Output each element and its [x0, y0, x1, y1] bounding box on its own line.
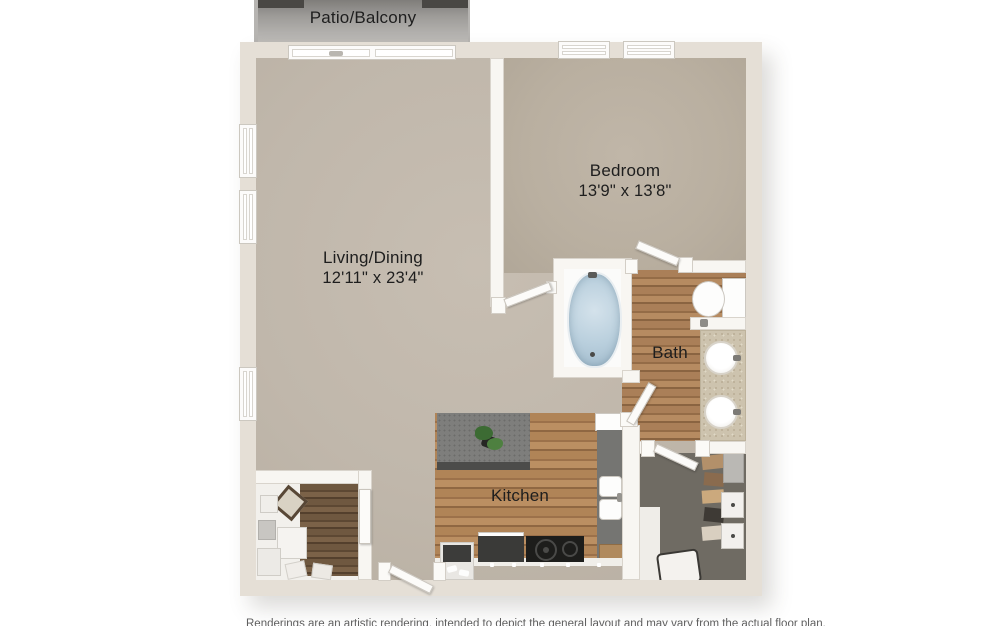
- walkin-bag: [723, 452, 744, 483]
- walkin-box-dot-2: [731, 534, 735, 538]
- closet-box-1: [260, 495, 278, 513]
- shower-head-icon: [588, 272, 597, 278]
- tub-drain-icon: [590, 352, 595, 357]
- toilet-half-wall: [690, 317, 746, 330]
- cabinet-handle-4: [566, 563, 570, 567]
- exterior-wall-bottom: [240, 580, 762, 596]
- cabinet-handle-3: [540, 563, 544, 567]
- wall-kitchen-closet: [622, 425, 640, 580]
- cabinet-handle-2: [512, 563, 516, 567]
- wall-living-bedroom: [490, 58, 504, 307]
- window-left-3: [239, 367, 257, 421]
- bedroom-label: Bedroom 13'9" x 13'8": [504, 160, 746, 202]
- window-bedroom-1: [558, 41, 610, 59]
- kitchen-counter-dark: [478, 536, 524, 562]
- bedroom-name: Bedroom: [504, 160, 746, 181]
- stove-burner-small-icon: [562, 541, 578, 557]
- window-left-1: [239, 124, 257, 178]
- closet-item: [311, 563, 333, 581]
- cabinet-handle-5: [597, 563, 601, 567]
- patio-label: Patio/Balcony: [278, 7, 448, 28]
- closet-box-2: [258, 520, 276, 540]
- kitchen-sink-basin-2: [599, 499, 622, 520]
- window-bedroom-2: [623, 41, 675, 59]
- wall-storage-closet-top: [240, 470, 372, 484]
- walkin-box-dot-1: [731, 503, 735, 507]
- closet-box-3: [257, 548, 281, 576]
- kitchen-sink-unit-top: [443, 545, 471, 562]
- storage-closet-wood-floor: [300, 484, 358, 576]
- storage-closet-door: [359, 489, 371, 544]
- counter-end-panel: [595, 413, 623, 431]
- floorplan-canvas: Patio/Balcony: [0, 0, 998, 626]
- toilet-paper-holder-icon: [700, 319, 708, 327]
- sliding-door-handle-icon: [329, 51, 343, 56]
- patio-sliding-door: [288, 45, 456, 60]
- living-label: Living/Dining 12'11" x 23'4": [256, 247, 490, 289]
- stove-burner-large-dot: [543, 547, 549, 553]
- bath-door-jamb-right: [678, 257, 693, 273]
- disclaimer-text: Renderings are an artistic rendering, in…: [246, 618, 786, 626]
- walkin-door-jamb-left: [641, 440, 655, 457]
- kitchen-island-edge: [437, 462, 530, 470]
- entry-door-jamb-right: [433, 562, 446, 581]
- living-name: Living/Dining: [256, 247, 490, 268]
- cabinet-handle-1: [490, 563, 494, 567]
- toilet-tank: [722, 278, 746, 318]
- vanity-faucet-1-icon: [733, 355, 741, 361]
- exterior-wall-right: [746, 42, 762, 596]
- walkin-door-jamb-right: [695, 440, 710, 457]
- closet-dresser: [277, 527, 307, 559]
- wall-bath-west-stub: [622, 370, 640, 383]
- hanging-clothes-2: [703, 472, 724, 487]
- bath-door-jamb-left: [625, 259, 638, 274]
- window-left-2: [239, 190, 257, 244]
- kitchen-label: Kitchen: [450, 485, 590, 506]
- bath-label: Bath: [638, 342, 702, 363]
- bedroom-dimensions: 13'9" x 13'8": [504, 181, 746, 202]
- living-dimensions: 12'11" x 23'4": [256, 268, 490, 289]
- toilet-fixture: [692, 281, 725, 317]
- vanity-faucet-2-icon: [733, 409, 741, 415]
